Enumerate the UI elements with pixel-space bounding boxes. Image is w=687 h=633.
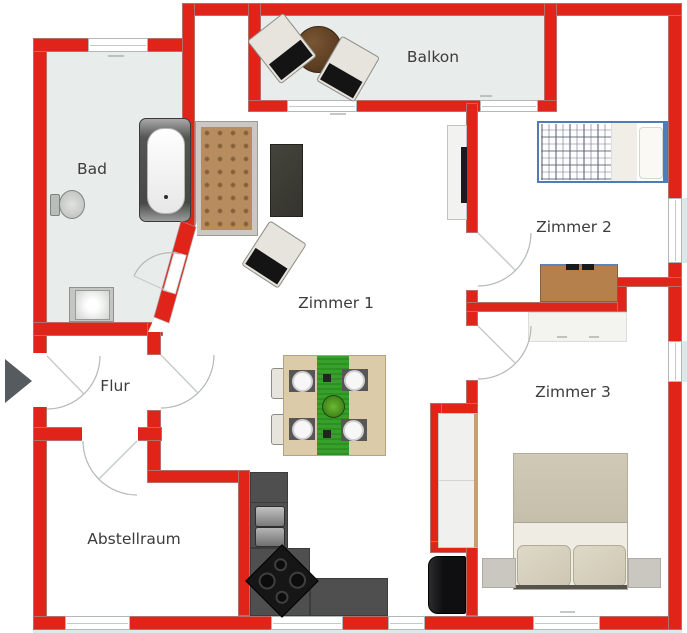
wall-outer-right xyxy=(668,3,682,630)
wall-storage-kitchen xyxy=(238,470,250,616)
balcony-zimmer2-window[interactable] xyxy=(480,100,538,112)
entry-door-leaf xyxy=(47,356,84,394)
wall-kitchen-top xyxy=(147,470,250,483)
washbasin-stand[interactable] xyxy=(69,287,114,322)
zimmer2-door-opening[interactable] xyxy=(466,233,478,290)
zimmer2-window[interactable] xyxy=(668,198,682,263)
closet[interactable] xyxy=(438,413,478,548)
burner xyxy=(271,556,289,574)
zimmer3-door-opening[interactable] xyxy=(466,326,478,380)
washbasin xyxy=(75,290,110,320)
wall-z2-z3-main xyxy=(466,302,627,312)
kitchen-window-left[interactable] xyxy=(271,616,343,630)
plate xyxy=(344,370,365,391)
window-glass xyxy=(390,623,423,624)
wall-hall-top xyxy=(33,322,163,336)
window-glass xyxy=(535,623,598,624)
bed-headboard xyxy=(514,585,627,589)
hall-livingroom-door-opening[interactable] xyxy=(147,355,161,410)
wall-hall-right-upper xyxy=(147,322,161,355)
zimmer2-window-sill xyxy=(682,198,687,263)
tv xyxy=(461,147,467,203)
sofa[interactable] xyxy=(196,122,257,235)
dining-table[interactable] xyxy=(283,355,386,456)
desk[interactable] xyxy=(540,264,618,302)
zimmer3-door-leaf xyxy=(478,326,515,363)
kitchen-counter-top[interactable] xyxy=(250,472,288,503)
hall-storage-door-leaf xyxy=(99,441,137,479)
kitchen-counter-bottom[interactable] xyxy=(310,578,388,616)
nightstand[interactable] xyxy=(482,558,516,588)
double-bed[interactable] xyxy=(513,453,628,590)
wall-z2-z3-right xyxy=(617,277,682,287)
wardrobe-handle xyxy=(589,336,599,338)
window-glass xyxy=(67,623,128,624)
balcony-door[interactable] xyxy=(287,100,357,112)
zimmer3-south-window[interactable] xyxy=(533,616,600,630)
bathtub-drain xyxy=(164,195,168,199)
kitchen-window-right[interactable] xyxy=(388,616,425,630)
wall-balcony-right xyxy=(544,3,557,112)
napkin-roll xyxy=(323,374,331,382)
wall-z3-lower xyxy=(466,541,478,616)
burner xyxy=(273,588,291,606)
desk-gadget xyxy=(566,264,579,270)
toilet-bowl[interactable] xyxy=(59,190,85,219)
burner xyxy=(286,568,310,592)
zimmer2-door-leaf xyxy=(478,233,515,270)
room-label-zimmer2: Zimmer 2 xyxy=(536,218,612,236)
room-label-abstellraum: Abstellraum xyxy=(87,530,181,548)
room-label-flur: Flur xyxy=(100,377,129,395)
room-label-bad: Bad xyxy=(77,160,107,178)
nightstand[interactable] xyxy=(628,558,661,588)
kitchen-sink-unit[interactable] xyxy=(250,502,288,548)
zimmer3-window-sill xyxy=(682,341,687,382)
storage-window[interactable] xyxy=(65,616,130,630)
zimmer2-door-arc[interactable] xyxy=(478,233,531,286)
sink-basin xyxy=(255,506,285,527)
hall-livingroom-door-leaf xyxy=(161,355,198,393)
window-glass xyxy=(289,106,355,107)
room-label-zimmer3: Zimmer 3 xyxy=(535,383,611,401)
zimmer3-door-arc[interactable] xyxy=(478,326,531,379)
entry-arrow-icon xyxy=(5,359,32,403)
room-label-balkon: Balkon xyxy=(407,48,459,66)
wall-z1-z2-upper xyxy=(466,103,478,233)
room-label-zimmer1: Zimmer 1 xyxy=(298,294,374,312)
bathtub-basin xyxy=(147,128,185,214)
wardrobe[interactable] xyxy=(528,312,627,342)
entry-door-arc[interactable] xyxy=(47,356,100,409)
entry-door-opening[interactable] xyxy=(33,353,47,407)
salad-bowl xyxy=(322,395,345,418)
bed-duvet xyxy=(514,454,627,523)
hall-storage-door-arc[interactable] xyxy=(83,441,137,495)
bed-pillow xyxy=(573,545,626,587)
bathtub[interactable] xyxy=(139,118,191,222)
plate xyxy=(292,419,313,440)
bed-pillow xyxy=(517,545,571,587)
plate xyxy=(343,420,364,441)
bed-pillow xyxy=(639,127,663,179)
desk-gadget xyxy=(582,264,594,270)
floor-plan: Bad Balkon Zimmer 1 Zimmer 2 Zimmer 3 Fl… xyxy=(0,0,687,633)
burner xyxy=(255,569,279,593)
window-glass xyxy=(273,623,341,624)
zimmer3-window[interactable] xyxy=(668,341,682,382)
window-glass xyxy=(675,200,676,261)
refrigerator[interactable] xyxy=(428,556,466,614)
hall-storage-door-opening[interactable] xyxy=(82,427,138,441)
window-glass xyxy=(90,45,146,46)
chair-seat xyxy=(245,248,287,285)
plate xyxy=(292,371,313,392)
bathroom-window[interactable] xyxy=(88,38,148,52)
closet-divider xyxy=(439,480,474,481)
bed-sheet xyxy=(611,123,637,181)
wardrobe-handle xyxy=(557,336,567,338)
window-glass xyxy=(482,106,536,107)
tv-sideboard[interactable] xyxy=(447,125,467,220)
single-bed[interactable] xyxy=(537,121,668,183)
side-table[interactable] xyxy=(270,144,303,217)
hall-livingroom-door-arc[interactable] xyxy=(161,355,214,408)
window-glass xyxy=(675,343,676,380)
napkin-roll xyxy=(323,430,331,438)
bed-plaid-duvet xyxy=(541,124,611,180)
